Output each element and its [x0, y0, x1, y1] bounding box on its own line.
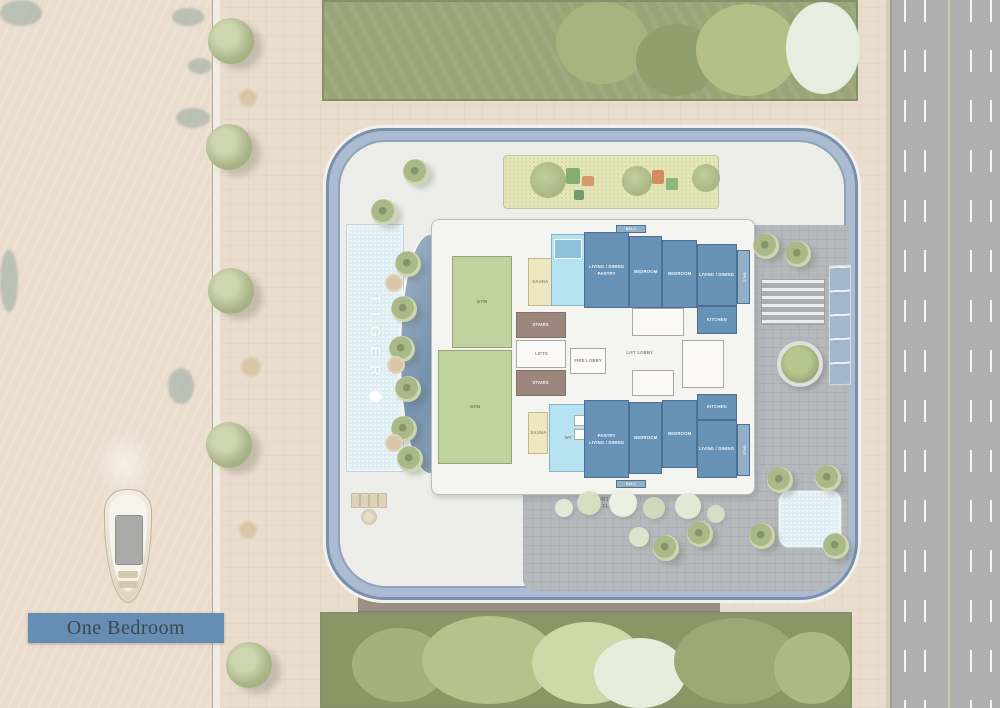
- glass-canopy: [829, 265, 851, 386]
- room-label: FIRE LOBBY: [574, 358, 601, 363]
- unit-living-dining[interactable]: LIVING / DINING: [697, 420, 737, 478]
- room-label: LIVING / DINING: [699, 272, 734, 277]
- tiger-logo-icon: [369, 391, 382, 402]
- play-structure: [652, 170, 664, 184]
- unit-living-dining[interactable]: LIVING / DINING PANTRY: [584, 232, 629, 308]
- yacht: [100, 487, 156, 605]
- road: [890, 0, 1000, 708]
- street-tree: [208, 268, 254, 314]
- corridor-room: [632, 308, 684, 336]
- shrub: [238, 520, 258, 540]
- tree-canopy: [786, 2, 860, 94]
- balcony: BALC: [737, 250, 750, 304]
- room-label: SAUNA: [532, 279, 548, 284]
- room-spa-lower: WC: [549, 404, 587, 472]
- palm-tree: [785, 241, 811, 267]
- unit-living-dining[interactable]: PANTRY LIVING / DINING: [584, 400, 629, 478]
- room-label: LIVING / DINING: [589, 440, 624, 445]
- palm-tree: [767, 467, 793, 493]
- site-plan-scene: TIGER GYM GYM SAUNA SAUNA: [0, 0, 1000, 708]
- umbrella: [361, 509, 377, 525]
- room-label: BEDROOM: [668, 271, 691, 276]
- unit-kitchen[interactable]: KITCHEN: [697, 394, 737, 420]
- palm-tree: [395, 251, 421, 277]
- palm-tree: [749, 523, 775, 549]
- round-planter: [777, 341, 823, 387]
- balcony: BALC: [737, 424, 750, 476]
- play-structure: [566, 168, 580, 184]
- lane-marking: [904, 0, 906, 708]
- shore-rock: [0, 250, 18, 312]
- room-gym-lower: GYM: [438, 350, 512, 464]
- shrub: [385, 274, 403, 292]
- play-structure: [574, 190, 584, 200]
- unit-bedroom[interactable]: BEDROOM: [629, 402, 662, 474]
- palm-tree: [391, 296, 417, 322]
- palm-tree: [815, 465, 841, 491]
- shore-rock: [176, 108, 210, 128]
- sun-lounger: [351, 493, 360, 508]
- tree-canopy: [774, 632, 850, 704]
- bush: [643, 497, 665, 519]
- play-structure: [582, 176, 594, 186]
- tree-canopy: [692, 164, 720, 192]
- lane-marking: [990, 0, 992, 708]
- core-stairs-bottom: STAIRS: [516, 370, 566, 396]
- unit-living-dining[interactable]: LIVING / DINING: [697, 244, 737, 306]
- top-park: [322, 0, 858, 101]
- shrub: [387, 356, 405, 374]
- room-label: LIFT LOBBY: [627, 350, 654, 355]
- palm-tree: [687, 521, 713, 547]
- playground: [503, 155, 719, 209]
- room-sauna-lower: SAUNA: [528, 412, 548, 454]
- room-label: LIFTS: [535, 351, 548, 356]
- room-label: BALC: [742, 445, 746, 455]
- palm-tree: [653, 535, 679, 561]
- yacht-seat: [118, 581, 138, 588]
- street-tree: [206, 124, 252, 170]
- room-label: BALC: [626, 227, 636, 231]
- room-label: LIVING / DINING: [589, 264, 624, 269]
- room-label: SAUNA: [530, 430, 546, 435]
- palm-tree: [403, 159, 429, 185]
- bush: [577, 491, 601, 515]
- room-label: BEDROOM: [634, 269, 657, 274]
- unit-type-badge-label: One Bedroom: [67, 617, 185, 640]
- plunge-pool: [554, 239, 582, 259]
- room-label: STAIRS: [533, 322, 549, 327]
- unit-bedroom[interactable]: BEDROOM: [629, 236, 662, 308]
- sun-lounger: [369, 493, 378, 508]
- room-label: BEDROOM: [668, 431, 691, 436]
- room-label: BALC: [626, 482, 636, 486]
- unit-bedroom[interactable]: BEDROOM: [662, 240, 697, 308]
- unit-kitchen[interactable]: KITCHEN: [697, 306, 737, 334]
- room-label: WC: [564, 435, 571, 440]
- street-tree: [208, 18, 254, 64]
- palm-tree: [371, 199, 397, 225]
- corridor-room: [682, 340, 724, 388]
- shore-rock: [0, 0, 42, 26]
- street-tree: [226, 642, 272, 688]
- floor-plan: GYM GYM SAUNA SAUNA WC: [431, 219, 755, 495]
- shrub: [240, 356, 262, 378]
- play-structure: [666, 178, 678, 190]
- room-label: PANTRY: [597, 433, 615, 438]
- yacht-cabin: [115, 515, 143, 565]
- site-boundary-ring: TIGER GYM GYM SAUNA SAUNA: [326, 128, 858, 600]
- tree-canopy: [556, 2, 648, 84]
- pool-watermark-text: TIGER: [367, 294, 384, 385]
- street-tree: [206, 422, 252, 468]
- corridor-room: [632, 370, 674, 396]
- core-lift-lobby: LIFT LOBBY: [612, 338, 668, 368]
- bush: [555, 499, 573, 517]
- room-label: BEDROOM: [634, 435, 657, 440]
- yacht-seat: [118, 571, 138, 578]
- lane-marking: [924, 0, 926, 708]
- bottom-forest: [320, 612, 852, 708]
- seawall: [212, 0, 220, 708]
- bush: [707, 505, 725, 523]
- room-gym-upper: GYM: [452, 256, 512, 348]
- room-label: GYM: [470, 404, 480, 409]
- tree-canopy: [696, 4, 798, 96]
- unit-bedroom[interactable]: BEDROOM: [662, 400, 697, 468]
- room-label: GYM: [477, 299, 487, 304]
- tree-canopy: [594, 638, 686, 708]
- shrub: [385, 434, 403, 452]
- bush: [675, 493, 701, 519]
- room-sauna-upper: SAUNA: [528, 258, 552, 306]
- room-label: KITCHEN: [707, 317, 727, 322]
- balcony: BALC: [616, 480, 646, 488]
- shore-rock: [188, 58, 212, 74]
- shore-rock: [172, 8, 204, 26]
- road-centerline: [948, 0, 950, 708]
- outdoor-stairs: [761, 279, 825, 325]
- room-label: PANTRY: [597, 271, 615, 276]
- shrub: [238, 88, 258, 108]
- tree-canopy: [622, 166, 652, 196]
- core-fire-lobby: FIRE LOBBY: [570, 348, 606, 374]
- palm-tree: [823, 533, 849, 559]
- room-label: BALC: [742, 272, 746, 282]
- sun-lounger: [360, 493, 369, 508]
- unit-type-badge[interactable]: One Bedroom: [28, 613, 224, 643]
- core-stairs-top: STAIRS: [516, 312, 566, 338]
- palm-tree: [753, 233, 779, 259]
- bush: [629, 527, 649, 547]
- shore-rock: [168, 368, 194, 404]
- bush: [609, 489, 637, 517]
- palm-tree: [395, 376, 421, 402]
- room-label: STAIRS: [533, 380, 549, 385]
- lane-marking: [970, 0, 972, 708]
- tree-canopy: [530, 162, 566, 198]
- core-lifts: LIFTS: [516, 340, 566, 368]
- room-label: KITCHEN: [707, 404, 727, 409]
- palm-tree: [397, 446, 423, 472]
- room-label: LIVING / DINING: [699, 446, 734, 451]
- sun-lounger: [378, 493, 387, 508]
